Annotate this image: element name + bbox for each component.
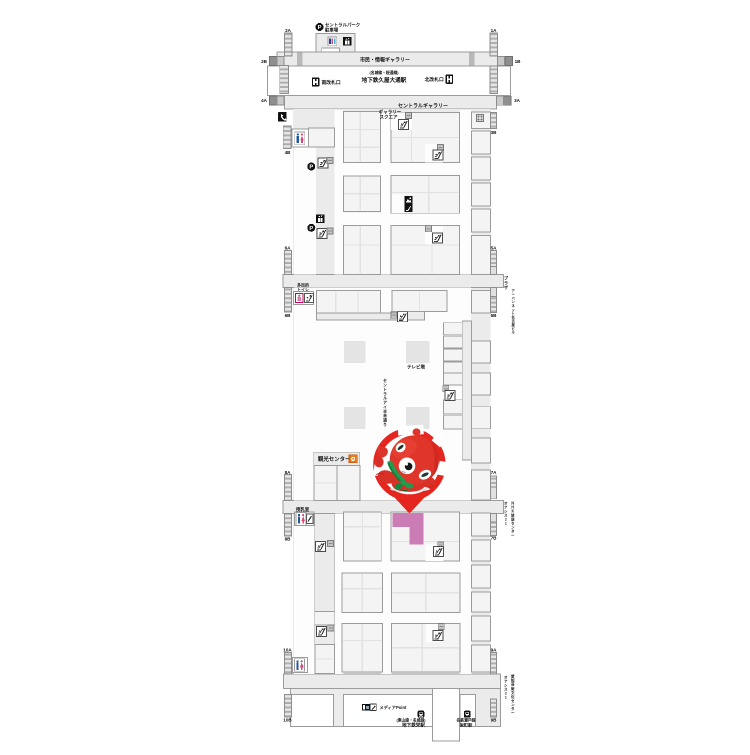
svg-text:6A: 6A: [285, 246, 292, 251]
svg-text:8B: 8B: [285, 536, 292, 541]
svg-text:5B: 5B: [491, 313, 498, 318]
svg-text:トイレ: トイレ: [297, 287, 309, 292]
svg-text:4B: 4B: [285, 150, 292, 155]
svg-text:駐車場: 駐車場: [325, 27, 339, 34]
svg-text:北改札口: 北改札口: [425, 76, 444, 83]
svg-text:テレビ塔: テレビ塔: [407, 364, 425, 371]
svg-text:地下鉄栄駅: 地下鉄栄駅: [402, 721, 425, 728]
svg-text:南改札口: 南改札口: [322, 79, 341, 86]
svg-text:栄町駅: 栄町駅: [459, 721, 473, 728]
svg-text:6B: 6B: [285, 313, 292, 318]
svg-text:7B: 7B: [491, 536, 498, 541]
svg-text:ＮＨＫ放送センター: ＮＨＫ放送センター: [510, 500, 515, 537]
svg-text:2A: 2A: [285, 28, 292, 33]
svg-text:10B: 10B: [283, 718, 292, 723]
svg-text:観光センター: 観光センター: [318, 455, 350, 463]
svg-text:10A: 10A: [283, 648, 292, 653]
svg-text:愛知芸術文化センター: 愛知芸術文化センター: [510, 674, 515, 715]
svg-text:セントラルギャラリー: セントラルギャラリー: [398, 102, 448, 109]
svg-text:8A: 8A: [285, 470, 292, 475]
svg-text:5A: 5A: [491, 246, 498, 251]
svg-text:地下鉄久屋大通駅: 地下鉄久屋大通駅: [362, 76, 407, 84]
svg-text:1B: 1B: [515, 59, 522, 64]
svg-text:3A: 3A: [514, 98, 521, 103]
svg-text:4A: 4A: [261, 98, 268, 103]
svg-text:1A: 1A: [491, 28, 498, 33]
svg-text:スクエア: スクエア: [380, 113, 398, 120]
svg-text:9A: 9A: [491, 648, 498, 653]
svg-text:2B: 2B: [261, 59, 268, 64]
svg-text:7A: 7A: [491, 470, 498, 475]
svg-text:(名城線・桜通線): (名城線・桜通線): [369, 70, 399, 75]
svg-text:9B: 9B: [491, 718, 498, 723]
svg-text:3B: 3B: [491, 130, 498, 135]
svg-text:メディアPoint: メディアPoint: [380, 704, 408, 711]
svg-text:市民・情報ギャラリー: 市民・情報ギャラリー: [360, 56, 410, 63]
svg-text:セントラルアイ半未通り: セントラルアイ半未通り: [382, 378, 387, 427]
